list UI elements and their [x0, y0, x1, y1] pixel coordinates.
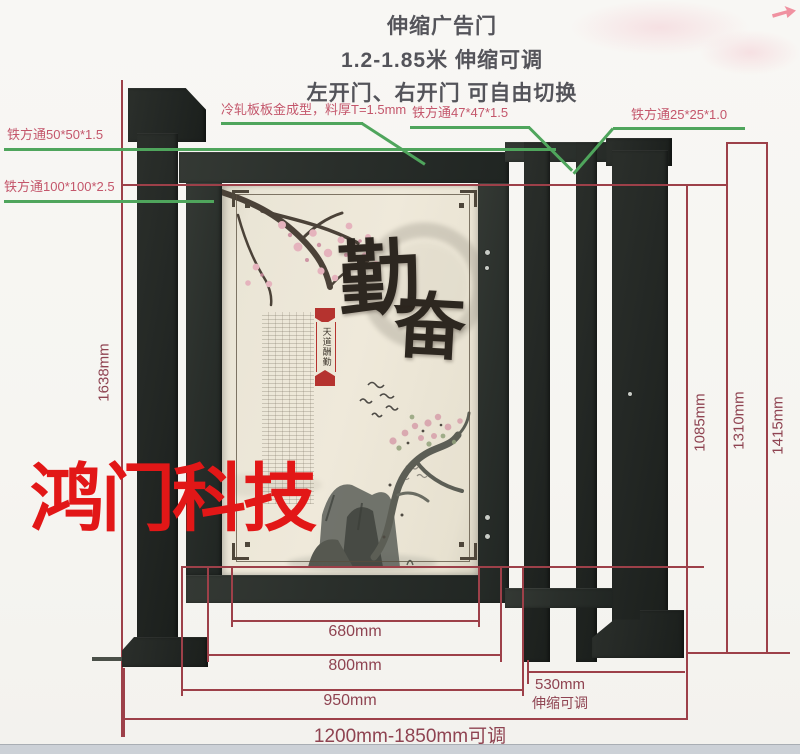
door-lock-dot	[485, 534, 490, 539]
tick-range-left	[123, 668, 125, 737]
left-post	[137, 133, 178, 640]
tick-680-right	[478, 566, 480, 627]
picket-bar-2	[576, 142, 597, 662]
tick-800-left	[207, 566, 209, 662]
dim-text-1638: 1638mm	[96, 328, 113, 418]
title-line-1: 伸缩广告门	[242, 10, 642, 40]
seal-banner-body: 天道酬勤	[316, 322, 336, 372]
ground-shadow	[92, 657, 124, 661]
leader-line-steel47	[410, 126, 530, 129]
seal-banner-bottom	[315, 370, 335, 386]
tick-950-left	[181, 566, 183, 696]
dim-text-680: 680mm	[305, 623, 405, 641]
frame-corner-ornament	[232, 190, 249, 207]
dim-text-800: 800mm	[305, 657, 405, 675]
callout-steel25: 铁方通25*25*1.0	[631, 108, 727, 123]
dim-text-950: 950mm	[300, 692, 400, 710]
dimension-line-800	[207, 654, 501, 656]
dim-text-range: 1200mm-1850mm可调	[280, 721, 540, 748]
left-post-base	[122, 637, 208, 667]
dimension-line-1638	[121, 80, 123, 737]
callout-steel50: 铁方通50*50*1.5	[7, 128, 103, 143]
leader-line-steel25	[613, 127, 745, 130]
dimension-line-1415	[766, 142, 768, 653]
leader-line-steel100	[4, 200, 214, 203]
leader-line-steel50	[4, 148, 556, 151]
dim-text-1085: 1085mm	[692, 378, 709, 468]
dimension-connector-mid	[181, 566, 704, 568]
dimension-line-1085	[686, 185, 688, 720]
door-lock-dot	[485, 515, 490, 520]
callout-steel47: 铁方通47*47*1.5	[412, 106, 508, 121]
dimension-line-950	[181, 689, 523, 691]
dimension-line-1310	[726, 142, 728, 653]
calligraphy-fen: 奋	[392, 289, 468, 365]
tick-680-left	[231, 566, 233, 627]
dimension-connector-top	[121, 184, 727, 186]
seal-banner: 天道酬勤	[315, 308, 335, 386]
dimension-line-680	[231, 620, 479, 622]
dimension-connector-topright	[726, 142, 768, 144]
title-line-2: 1.2-1.85米 伸缩可调	[242, 44, 642, 74]
pink-arrow-artifact	[772, 6, 796, 21]
pink-smudge-artifact	[700, 30, 800, 75]
leader-line-coldrolled	[221, 122, 363, 125]
frame-corner-ornament	[460, 190, 477, 207]
tick-800-right	[500, 566, 502, 662]
door-hinge-dot	[485, 266, 489, 270]
gate-product-photo: 伸缩广告门 1.2-1.85米 伸缩可调 左开门、右开门 可自由切换	[0, 0, 800, 754]
door-right-stile	[478, 183, 509, 603]
callout-coldrolled: 冷轧板板金成型，料厚T=1.5mm	[221, 103, 406, 118]
dim-text-530-note: 伸缩可调	[520, 693, 600, 713]
post-screw-dot	[628, 392, 632, 396]
dim-text-1310: 1310mm	[731, 376, 748, 466]
tick-950-right	[522, 566, 524, 696]
door-bottom-rail	[186, 575, 509, 603]
door-hinge-dot	[485, 250, 490, 255]
dimension-connector-bottomright	[686, 652, 790, 654]
dim-text-1415: 1415mm	[770, 381, 787, 471]
dim-text-530: 530mm	[525, 676, 595, 693]
seal-text: 天道酬勤	[320, 327, 331, 367]
dimension-line-range	[123, 718, 687, 720]
watermark-text: 鸿门科技	[30, 462, 314, 536]
frame-corner-ornament	[460, 543, 477, 560]
door-top-rail	[179, 152, 509, 183]
dimension-line-530	[527, 671, 685, 673]
callout-steel100: 铁方通100*100*2.5	[4, 180, 115, 195]
picket-bar-1	[524, 142, 550, 662]
frame-corner-ornament	[232, 543, 249, 560]
